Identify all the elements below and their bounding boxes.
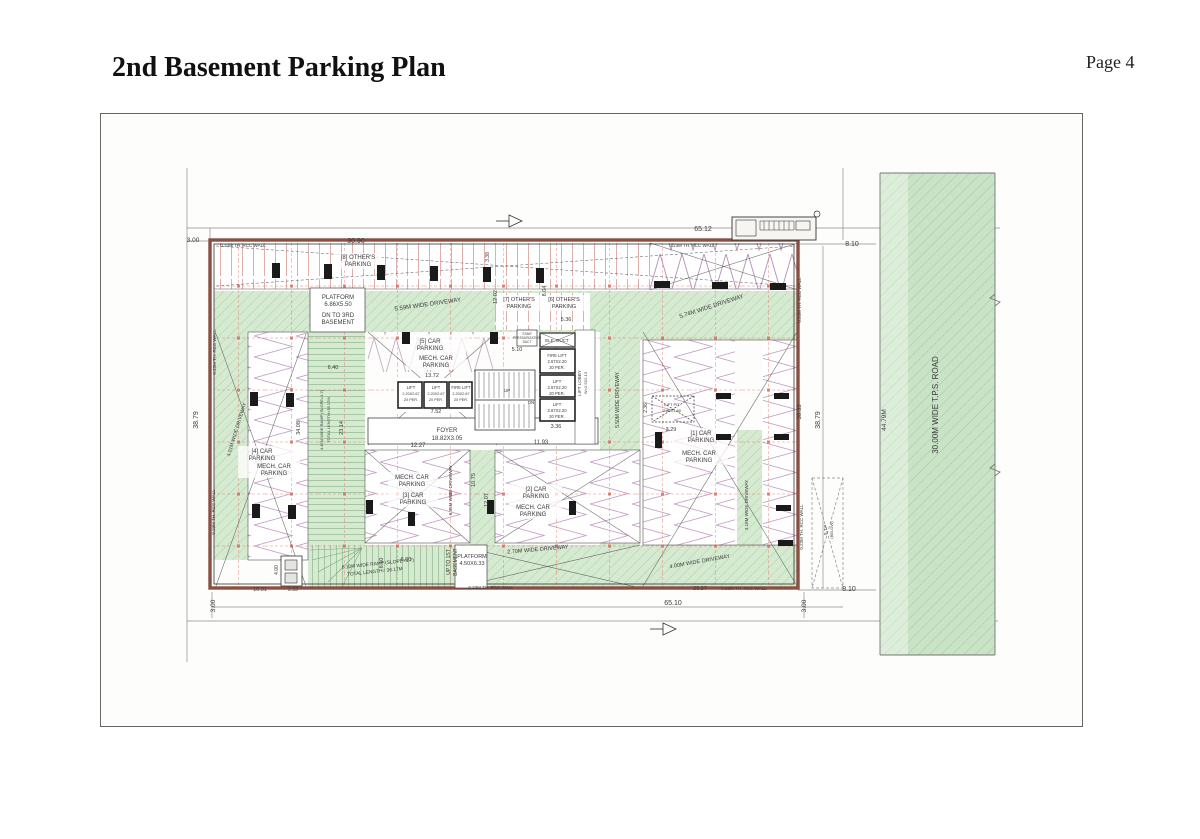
plan-label: 7.52	[431, 409, 442, 415]
plan-label: DN TO 3RD	[322, 313, 355, 319]
plan-label: 20 PER.	[549, 365, 565, 370]
plan-label: 0.23M TH. RCC WALL	[211, 489, 216, 535]
plan-label: 3.38	[485, 252, 491, 262]
plan-label: 65.10	[664, 600, 682, 607]
plan-label: 20 PER.	[549, 391, 565, 396]
plan-label: 23.14	[339, 421, 345, 435]
plan-label: 0.23M TH. RCC WALL	[468, 585, 514, 590]
plan-label: 8.04	[542, 286, 548, 297]
plan-label: MECH. CAR	[682, 451, 716, 457]
plan-label: 2.67X2.20	[547, 359, 567, 364]
plan-label: 38.79	[193, 411, 200, 429]
plan-label: [6] OTHER'S	[548, 297, 580, 303]
plan-label: 20 PER.	[429, 398, 443, 402]
plan-label: W=2.5X2.13	[583, 371, 588, 394]
plan-label: 0.23M TH. RCC WALL	[669, 243, 715, 248]
plan-label: [7] OTHER'S	[503, 297, 535, 303]
plan-label: LIFT PIT	[664, 402, 680, 407]
plan-label: 2.67X2.20	[547, 408, 567, 413]
plan-label: [8] OTHER'S	[341, 255, 376, 261]
plan-label: [5] CAR	[419, 339, 441, 345]
plan-label: [4] CAR	[251, 449, 273, 455]
plan-label: LIFT	[553, 402, 562, 407]
plan-label: PARKING	[399, 482, 426, 488]
plan-label: 0.23M TH. RCC WALL	[220, 243, 266, 248]
plan-label: TOTAL LENGTH=35.17M	[326, 397, 331, 442]
plan-label: [3] CAR	[402, 493, 424, 499]
plan-label: PARKING	[507, 304, 531, 310]
plan-label: 0.23M TH. RCC WALL	[797, 277, 802, 323]
page-number: Page 4	[1086, 52, 1135, 73]
plan-label: FIRE LIFT	[451, 385, 471, 390]
plan-label: UP	[504, 388, 510, 393]
document-page: Page 4 2nd Basement Parking Plan	[0, 0, 1200, 839]
plan-label: 44.79M	[881, 409, 888, 431]
plan-label: 10.31	[253, 587, 267, 593]
plan-label: 8.10	[842, 586, 856, 593]
plan-label: PARKING	[417, 346, 444, 352]
plan-label: 0.23M TH. RCC WALL	[799, 504, 804, 550]
plan-label: 3.00	[187, 237, 200, 244]
plan-label: PARKING	[523, 494, 550, 500]
plan-label: 5.36	[561, 317, 572, 323]
plan-label: 0.23M TH. RCC WALL	[212, 329, 217, 375]
plan-label: 23.27	[693, 586, 707, 592]
plan-label: LIFT	[407, 385, 416, 390]
plan-label: 2.80X1.80	[663, 408, 682, 413]
plan-label: 6.35M WIDE DRIVEWAY	[448, 465, 453, 515]
plan-label: PARKING	[249, 456, 276, 462]
plan-label: FIRE LIFT	[547, 353, 567, 358]
page-title: 2nd Basement Parking Plan	[112, 52, 446, 84]
plan-label: [1] CAR	[690, 431, 712, 437]
plan-label: 2.67X2.20	[547, 385, 567, 390]
plan-label: 12.07	[484, 493, 490, 507]
plan-label: LIFT LOBBY	[577, 370, 582, 395]
plan-label: 2.36	[643, 403, 649, 413]
plan-label: 12.27	[410, 443, 426, 449]
plan-label: 3.16M WIDE DRIVEWAY	[744, 480, 749, 530]
plan-label: MECH. CAR	[419, 356, 453, 362]
plan-label: 38.79	[815, 411, 822, 429]
plan-label: S.T.P	[823, 525, 828, 536]
plan-label: 5.10	[512, 347, 523, 353]
plan-label: 3.36	[551, 424, 562, 430]
plan-label: 3.29	[666, 427, 677, 433]
plan-label: PARKING	[552, 304, 576, 310]
plan-label: 4.50X6.33	[459, 561, 484, 567]
plan-label: 0.23M TH. RCC WALL	[721, 586, 767, 591]
plan-label: 2.20X2.67	[452, 392, 469, 396]
plan-label: PARKING	[686, 458, 713, 464]
plan-label: ELE. DUCT	[545, 338, 569, 343]
plan-label: FOYER	[437, 428, 458, 434]
plan-label: 18.82X3.05	[432, 436, 463, 442]
plan-label: PLATFORM	[322, 295, 354, 301]
plan-label: 4.49M WIDE RAMP (SLOPE=1:7)	[319, 389, 324, 450]
plan-label: DUCT	[523, 340, 532, 344]
plan-label: 8.10	[845, 241, 859, 248]
plan-label: (BELOW)	[829, 521, 834, 539]
plan-label: BASEMENT	[453, 548, 459, 576]
plan-label: PARKING	[423, 363, 450, 369]
plan-label: 3.00	[210, 599, 217, 612]
plan-label: 2.20X2.67	[402, 392, 419, 396]
plan-label: 11.93	[534, 440, 549, 446]
plan-figure-frame: 65.1230.903.008.108.1065.103.003.0038.79…	[100, 113, 1083, 727]
plan-label: MECH. CAR	[257, 464, 291, 470]
plan-label: 6.40	[328, 365, 339, 371]
plan-label: PARKING	[400, 500, 427, 506]
plan-label: MECH. CAR	[395, 475, 429, 481]
plan-label: 20 PER.	[549, 414, 565, 419]
plan-label: PARKING	[345, 262, 372, 268]
plan-label: 3.00	[801, 599, 808, 612]
shaft-box	[281, 556, 302, 586]
plan-label: PARKING	[261, 471, 288, 477]
parking-plan-drawing: 65.1230.903.008.108.1065.103.003.0038.79…	[101, 114, 1082, 726]
plan-label: LIFT	[432, 385, 441, 390]
plan-label: MECH. CAR	[516, 505, 550, 511]
plan-label: 2.20X2.67	[427, 392, 444, 396]
plan-label: PARKING	[688, 438, 715, 444]
plan-label: 65.12	[694, 226, 712, 233]
plan-label: 38.33	[797, 404, 803, 420]
plan-label: BASEMENT	[321, 320, 354, 326]
plan-label: 2.33	[288, 587, 298, 593]
plan-label: 30.90	[347, 238, 365, 245]
plan-label: 6.86X5.50	[324, 302, 352, 308]
plan-label: 10.75	[471, 473, 477, 487]
plan-label: PARKING	[520, 512, 547, 518]
plan-label: 20 PER.	[454, 398, 468, 402]
plan-label: PLATFORM	[457, 554, 487, 560]
plan-label: LIFT	[553, 379, 562, 384]
plan-label: 34.08	[296, 421, 302, 435]
plan-label: 5.50M WIDE DRIVEWAY	[615, 371, 621, 428]
plan-label: DN	[528, 400, 535, 405]
tps-road	[880, 173, 1000, 655]
plan-label: 20 PER.	[404, 398, 418, 402]
plan-label: UP TO 1ST	[446, 549, 452, 575]
plan-label: [2] CAR	[525, 487, 547, 493]
plan-label: 13.72	[425, 373, 439, 379]
plan-label: 4.00	[274, 565, 280, 575]
plan-label: 30.00M WIDE T.P.S. ROAD	[931, 356, 940, 454]
plan-label: 12.02	[493, 290, 499, 304]
